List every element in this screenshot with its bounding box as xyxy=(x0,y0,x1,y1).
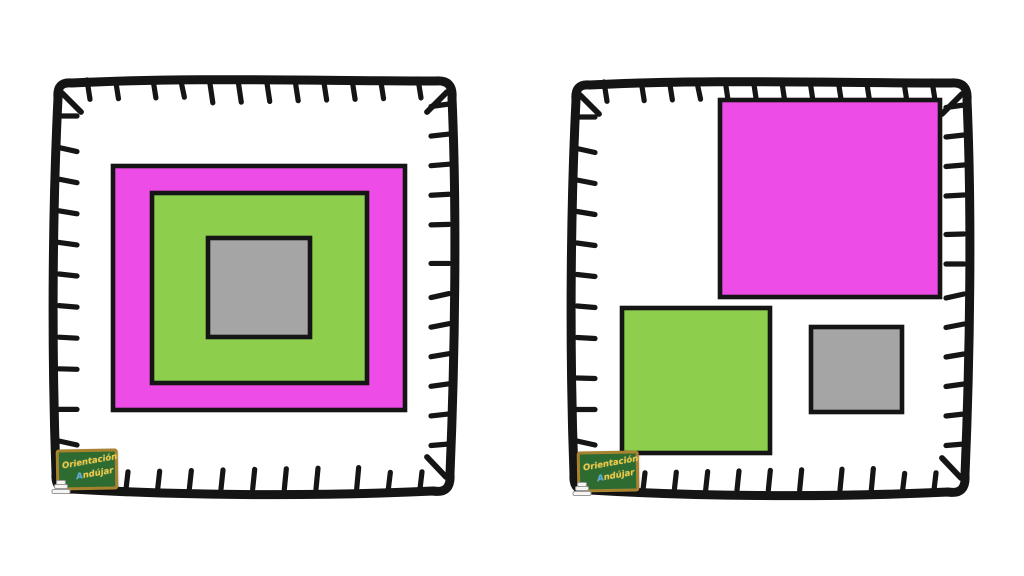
gray-square xyxy=(208,238,310,337)
orientacion-andujar-logo: Orientación Andújar xyxy=(577,451,639,492)
left-stitched-frame xyxy=(48,70,460,500)
orientacion-andujar-logo: Orientación Andújar xyxy=(56,449,118,490)
gray-square xyxy=(811,327,902,412)
cake-icon xyxy=(572,482,592,496)
worksheet-canvas: Orientación Andújar Orientación Andújar xyxy=(0,0,1024,576)
green-square xyxy=(622,308,770,453)
right-stitched-frame xyxy=(566,72,975,501)
magenta-square xyxy=(720,100,940,297)
cake-icon xyxy=(51,480,71,494)
